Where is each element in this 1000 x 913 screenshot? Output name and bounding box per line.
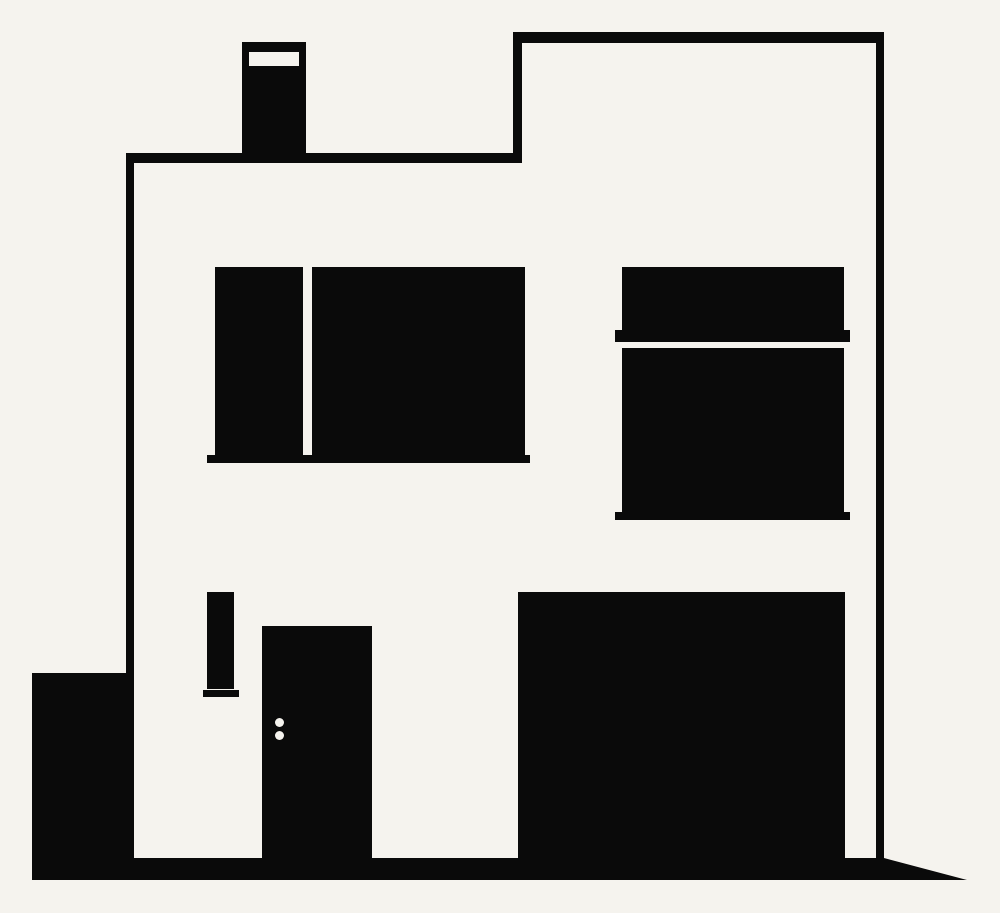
chimney-cap-band bbox=[249, 52, 299, 66]
upper-right-window-bottom-sill bbox=[615, 512, 850, 520]
upper-left-window-sill bbox=[207, 455, 530, 463]
upper-right-window-main-pane bbox=[622, 348, 844, 512]
chimney bbox=[242, 42, 306, 163]
house-illustration bbox=[0, 0, 1000, 913]
ground-line bbox=[32, 858, 884, 880]
slit-window bbox=[207, 592, 234, 689]
front-door bbox=[262, 626, 372, 880]
side-wall-block bbox=[32, 673, 134, 880]
upper-right-window-transom bbox=[622, 267, 844, 336]
slit-window-base bbox=[203, 690, 239, 697]
left-roof-line bbox=[126, 153, 522, 163]
right-wall bbox=[876, 32, 884, 880]
garage-door bbox=[518, 592, 845, 880]
door-handle-dot-top bbox=[275, 718, 284, 727]
upper-right-window-mid-sill bbox=[615, 330, 850, 342]
upper-left-window-pane-wide bbox=[312, 267, 525, 455]
ground-line-taper bbox=[884, 858, 967, 880]
upper-left-window-pane-narrow bbox=[215, 267, 303, 455]
right-roof-line bbox=[513, 32, 884, 43]
door-handle-dot-bottom bbox=[275, 731, 284, 740]
roof-step-wall bbox=[513, 32, 522, 163]
